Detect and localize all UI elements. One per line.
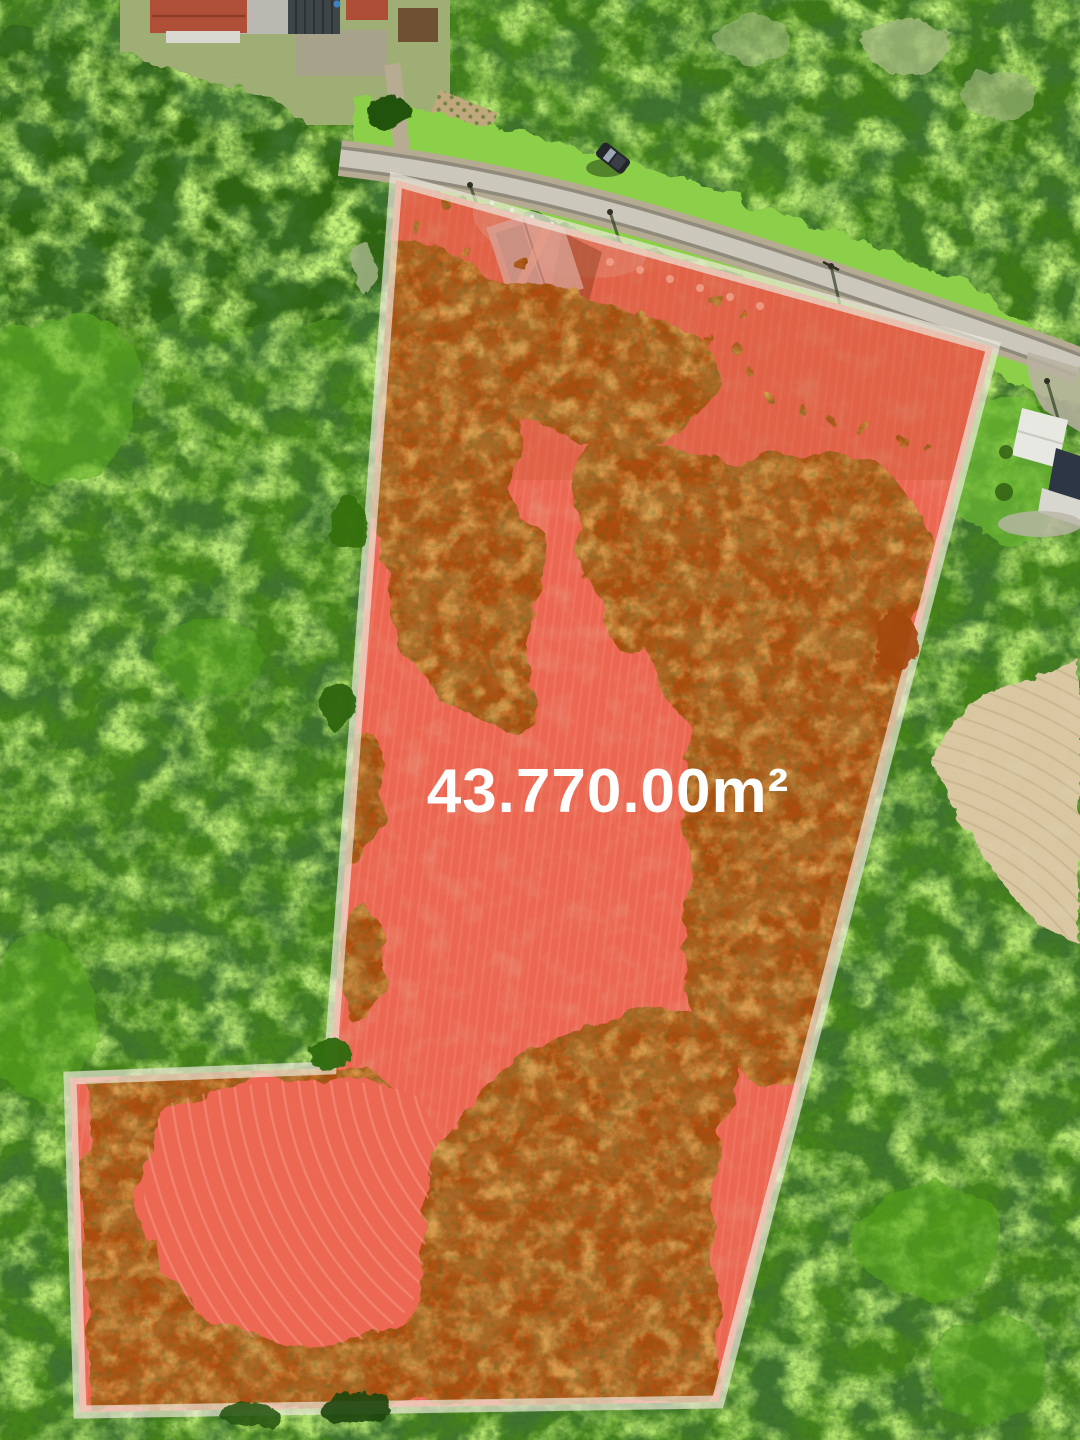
aerial-photo: 43.770.00m² bbox=[0, 0, 1080, 1440]
pale-tree bbox=[714, 16, 790, 64]
area-label: 43.770.00m² bbox=[427, 757, 790, 826]
bush bbox=[999, 445, 1013, 459]
tree-over-driveway bbox=[368, 96, 408, 128]
aerial-photo-canvas: 43.770.00m² bbox=[0, 0, 1080, 1440]
bush bbox=[995, 483, 1013, 501]
farmhouse-path bbox=[998, 511, 1080, 537]
pale-tree bbox=[860, 17, 950, 73]
bright-forest-patch bbox=[858, 1180, 1002, 1300]
pale-tree bbox=[962, 71, 1038, 119]
bright-forest-patch bbox=[160, 618, 270, 702]
